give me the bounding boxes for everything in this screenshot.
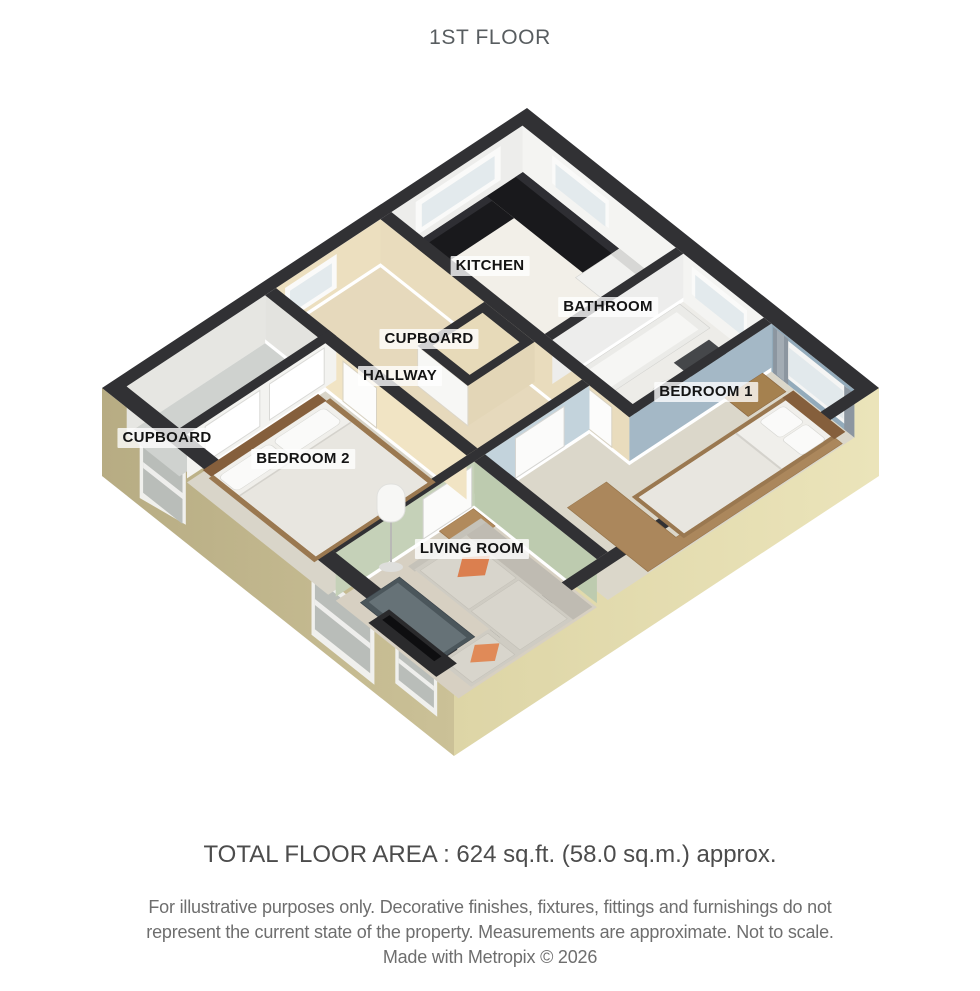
floorplan-page: 1ST FLOOR xyxy=(0,0,980,991)
room-label-bathroom: BATHROOM xyxy=(558,297,658,317)
room-label-bedroom-1: BEDROOM 1 xyxy=(654,382,758,402)
disclaimer: For illustrative purposes only. Decorati… xyxy=(0,895,980,970)
room-label-kitchen: KITCHEN xyxy=(451,256,530,276)
cushion-orange-2 xyxy=(470,643,499,662)
room-label-cupboard-left: CUPBOARD xyxy=(117,428,216,448)
room-label-hallway: HALLWAY xyxy=(358,366,442,386)
room-label-living-room: LIVING ROOM xyxy=(415,539,529,559)
room-label-bedroom-2: BEDROOM 2 xyxy=(251,449,355,469)
disclaimer-line-1: For illustrative purposes only. Decorati… xyxy=(0,895,980,920)
disclaimer-line-2: represent the current state of the prope… xyxy=(0,920,980,945)
room-label-cupboard-center: CUPBOARD xyxy=(379,329,478,349)
metropix-credit: Made with Metropix © 2026 xyxy=(0,945,980,970)
total-floor-area: TOTAL FLOOR AREA : 624 sq.ft. (58.0 sq.m… xyxy=(0,841,980,869)
